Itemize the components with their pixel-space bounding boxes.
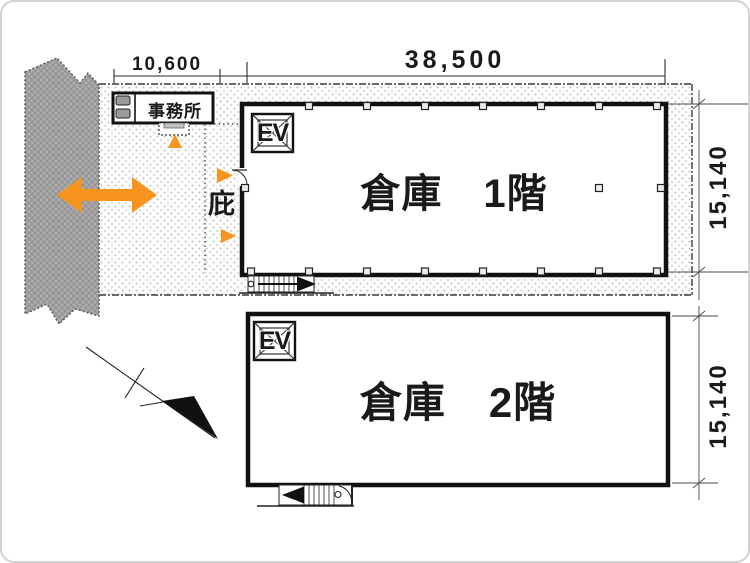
toilet-fixture-icon (116, 109, 130, 118)
office-label: 事務所 (136, 97, 214, 122)
toilet-fixture-icon (116, 96, 130, 105)
dimension-office-width: 10,600 (106, 54, 228, 76)
floor1-room-label: 倉庫 1階 (242, 104, 666, 275)
floor2-room-label: 倉庫 2階 (248, 314, 668, 485)
dimension-warehouse-width: 38,500 (245, 46, 665, 75)
elevator-label-floor2: EV (254, 322, 295, 360)
dimension-floor2-depth: 15,140 (705, 336, 735, 476)
elevator-label-floor1: EV (252, 114, 293, 152)
office-entrance (159, 123, 189, 135)
floorplan-image: 10,600 38,500 15,140 15,140 事務所 庇 倉庫 1階 … (0, 0, 750, 563)
floor2-stairs-icon (257, 485, 354, 506)
canopy-label: 庇 (208, 182, 235, 221)
dimension-floor1-depth: 15,140 (705, 117, 735, 257)
north-arrow (86, 347, 218, 439)
